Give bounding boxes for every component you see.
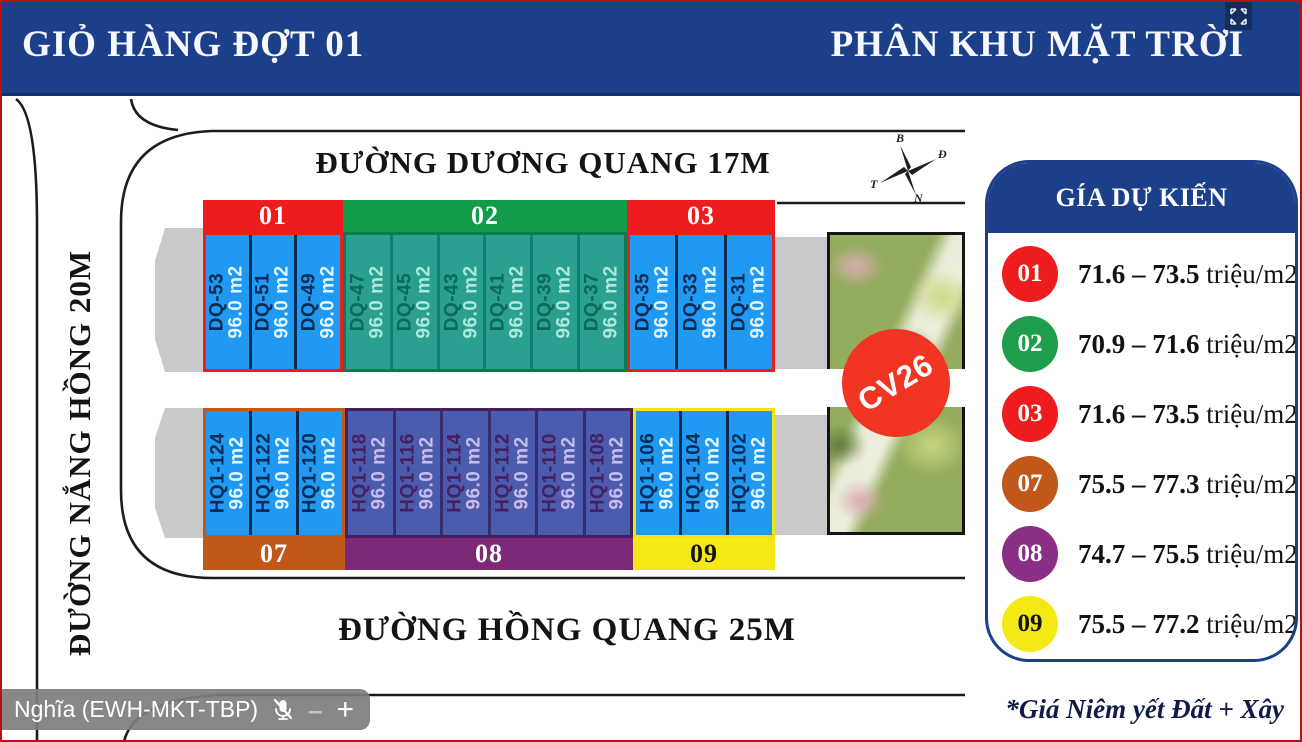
compass-east-label: Đ [938, 147, 947, 162]
plot-name: HQ1-122 [255, 433, 274, 514]
plot-name: HQ1-124 [208, 433, 227, 514]
legend-circle-07: 07 [1002, 456, 1058, 512]
block-03-label: 03 [627, 200, 775, 232]
plot-name: DQ-33 [682, 273, 701, 331]
screenshot-canvas: GIỎ HÀNG ĐỢT 01 PHÂN KHU MẶT TRỜI ĐƯỜNG … [0, 0, 1302, 742]
plot-area: 96.0 m2 [602, 265, 621, 338]
legend-price: 71.6 – 73.5 triệu/m2 [1078, 259, 1298, 290]
plot-name: HQ1-114 [446, 433, 465, 513]
presenter-nameplate: Nghĩa (EWH-MKT-TBP) – + [0, 689, 370, 730]
plot-area: 96.0 m2 [370, 436, 389, 509]
compass-south-label: N [914, 191, 923, 206]
compass-north-label: B [896, 131, 904, 146]
plot-cell-HQ1-104: HQ1-10496.0 m2 [679, 411, 725, 535]
block-03: 03DQ-3596.0 m2DQ-3396.0 m2DQ-3196.0 m2 [627, 200, 775, 372]
plot-cell-DQ-43: DQ-4396.0 m2 [437, 235, 484, 369]
page-title-left: GIỎ HÀNG ĐỢT 01 [22, 23, 364, 66]
plot-name: HQ1-108 [588, 433, 607, 514]
mic-off-icon[interactable] [272, 698, 294, 722]
street-label-nang-hong: ĐƯỜNG NẮNG HỒNG 20M [62, 241, 98, 665]
block-02-cells: DQ-4796.0 m2DQ-4596.0 m2DQ-4396.0 m2DQ-4… [343, 232, 627, 372]
plot-name: HQ1-102 [731, 433, 750, 514]
minus-icon[interactable]: – [308, 697, 322, 723]
plot-name: DQ-51 [254, 273, 273, 331]
legend-rows: 0171.6 – 73.5 triệu/m20270.9 – 71.6 triệ… [988, 239, 1295, 659]
plot-area: 96.0 m2 [228, 436, 247, 509]
road-left-outer-edge [16, 99, 37, 740]
plot-name: DQ-47 [349, 273, 368, 331]
plot-cell-HQ1-124: HQ1-12496.0 m2 [206, 411, 249, 535]
plot-area: 96.0 m2 [418, 436, 437, 509]
plot-area: 96.0 m2 [560, 436, 579, 509]
plot-area: 96.0 m2 [555, 265, 574, 338]
gray-strip-bottom-right [775, 415, 827, 535]
plot-name: DQ-39 [536, 273, 555, 331]
plot-cell-DQ-51: DQ-5196.0 m2 [249, 235, 295, 369]
legend-price: 70.9 – 71.6 triệu/m2 [1078, 329, 1298, 360]
plot-cell-DQ-39: DQ-3996.0 m2 [530, 235, 577, 369]
block-03-cells: DQ-3596.0 m2DQ-3396.0 m2DQ-3196.0 m2 [627, 232, 775, 372]
legend-row-03: 0371.6 – 73.5 triệu/m2 [988, 379, 1295, 449]
compass-west-label: T [870, 177, 877, 192]
plot-cell-HQ1-120: HQ1-12096.0 m2 [296, 411, 342, 535]
plot-area: 96.0 m2 [704, 436, 723, 509]
plot-name: DQ-43 [442, 273, 461, 331]
legend-circle-08: 08 [1002, 526, 1058, 582]
plot-cell-DQ-41: DQ-4196.0 m2 [483, 235, 530, 369]
plot-cell-DQ-35: DQ-3596.0 m2 [630, 235, 675, 369]
title-bar: GIỎ HÀNG ĐỢT 01 PHÂN KHU MẶT TRỜI [0, 2, 1302, 96]
legend-footnote: *Giá Niêm yết Đất + Xây [864, 694, 1284, 725]
plot-cell-HQ1-110: HQ1-11096.0 m2 [535, 411, 583, 535]
plot-area: 96.0 m2 [273, 265, 292, 338]
block-01: 01DQ-5396.0 m2DQ-5196.0 m2DQ-4996.0 m2 [203, 200, 343, 372]
plot-area: 96.0 m2 [608, 436, 627, 509]
legend-price: 71.6 – 73.5 triệu/m2 [1078, 399, 1298, 430]
block-08-cells: HQ1-11896.0 m2HQ1-11696.0 m2HQ1-11496.0 … [345, 408, 633, 538]
plot-cell-DQ-37: DQ-3796.0 m2 [577, 235, 624, 369]
plot-cell-DQ-49: DQ-4996.0 m2 [294, 235, 340, 369]
plot-area: 96.0 m2 [658, 436, 677, 509]
legend-circle-03: 03 [1002, 386, 1058, 442]
block-09-label: 09 [633, 538, 775, 570]
block-09-cells: HQ1-10696.0 m2HQ1-10496.0 m2HQ1-10296.0 … [633, 408, 775, 538]
plot-area: 96.0 m2 [750, 436, 769, 509]
plot-cell-HQ1-102: HQ1-10296.0 m2 [726, 411, 772, 535]
park-badge: CV26 [842, 329, 950, 437]
block-07: HQ1-12496.0 m2HQ1-12296.0 m2HQ1-12096.0 … [203, 408, 345, 570]
plot-area: 96.0 m2 [462, 265, 481, 338]
plot-area: 96.0 m2 [701, 265, 720, 338]
block-07-label: 07 [203, 538, 345, 570]
presenter-name: Nghĩa (EWH-MKT-TBP) [14, 696, 258, 723]
park-badge-label: CV26 [852, 347, 940, 420]
block-01-cells: DQ-5396.0 m2DQ-5196.0 m2DQ-4996.0 m2 [203, 232, 343, 372]
plot-cell-HQ1-108: HQ1-10896.0 m2 [583, 411, 631, 535]
plot-name: DQ-35 [633, 273, 652, 331]
road-connector [131, 99, 178, 130]
collapse-arrows-icon[interactable] [1225, 2, 1252, 30]
block-09: HQ1-10696.0 m2HQ1-10496.0 m2HQ1-10296.0 … [633, 408, 775, 570]
plot-cell-DQ-33: DQ-3396.0 m2 [675, 235, 723, 369]
plot-area: 96.0 m2 [749, 265, 768, 338]
gray-parcel-bottom-left [155, 408, 205, 538]
plot-name: HQ1-116 [398, 433, 417, 513]
plot-area: 96.0 m2 [368, 265, 387, 338]
legend-row-09: 0975.5 – 77.2 triệu/m2 [988, 589, 1295, 659]
plot-area: 96.0 m2 [227, 265, 246, 338]
legend-title: GÍA DỰ KIẾN [988, 163, 1295, 233]
legend-row-07: 0775.5 – 77.3 triệu/m2 [988, 449, 1295, 519]
plot-name: DQ-45 [395, 273, 414, 331]
plot-cell-DQ-53: DQ-5396.0 m2 [206, 235, 249, 369]
plot-cell-DQ-45: DQ-4596.0 m2 [390, 235, 437, 369]
plot-cell-HQ1-116: HQ1-11696.0 m2 [393, 411, 441, 535]
plot-name: HQ1-106 [638, 433, 657, 514]
legend-price: 75.5 – 77.3 triệu/m2 [1078, 469, 1298, 500]
plot-name: DQ-41 [489, 273, 508, 331]
block-08-label: 08 [345, 538, 633, 570]
block-02: 02DQ-4796.0 m2DQ-4596.0 m2DQ-4396.0 m2DQ… [343, 200, 627, 372]
plot-area: 96.0 m2 [415, 265, 434, 338]
block-08: HQ1-11896.0 m2HQ1-11696.0 m2HQ1-11496.0 … [345, 408, 633, 570]
plot-cell-HQ1-118: HQ1-11896.0 m2 [348, 411, 393, 535]
plot-cell-DQ-31: DQ-3196.0 m2 [724, 235, 772, 369]
plot-area: 96.0 m2 [508, 265, 527, 338]
block-02-label: 02 [343, 200, 627, 232]
street-label-duong-quang: ĐƯỜNG DƯƠNG QUANG 17M [243, 145, 843, 181]
plus-icon[interactable]: + [337, 695, 355, 725]
plot-name: DQ-31 [730, 273, 749, 331]
plot-area: 96.0 m2 [513, 436, 532, 509]
plot-cell-HQ1-114: HQ1-11496.0 m2 [440, 411, 488, 535]
plot-name: DQ-53 [208, 273, 227, 331]
plot-area: 96.0 m2 [465, 436, 484, 509]
plot-cell-DQ-47: DQ-4796.0 m2 [346, 235, 390, 369]
gray-parcel-top-left [155, 228, 205, 372]
plot-name: HQ1-110 [541, 433, 560, 513]
legend-row-01: 0171.6 – 73.5 triệu/m2 [988, 239, 1295, 309]
page-title-right: PHÂN KHU MẶT TRỜI [831, 23, 1284, 66]
compass-rose: B Đ T N [862, 133, 954, 205]
plot-cell-HQ1-112: HQ1-11296.0 m2 [488, 411, 536, 535]
legend-circle-09: 09 [1002, 596, 1058, 652]
block-01-label: 01 [203, 200, 343, 232]
legend-row-02: 0270.9 – 71.6 triệu/m2 [988, 309, 1295, 379]
street-label-hong-quang: ĐƯỜNG HỒNG QUANG 25M [267, 612, 867, 649]
plot-name: HQ1-120 [301, 433, 320, 514]
legend-circle-02: 02 [1002, 316, 1058, 372]
plot-name: HQ1-118 [351, 433, 370, 513]
legend-panel: GÍA DỰ KIẾN 0171.6 – 73.5 triệu/m20270.9… [985, 160, 1298, 662]
plot-area: 96.0 m2 [274, 436, 293, 509]
legend-circle-01: 01 [1002, 246, 1058, 302]
plot-name: DQ-37 [583, 273, 602, 331]
plot-name: HQ1-112 [493, 433, 512, 513]
plot-name: DQ-49 [299, 273, 318, 331]
block-07-cells: HQ1-12496.0 m2HQ1-12296.0 m2HQ1-12096.0 … [203, 408, 345, 538]
plot-name: HQ1-104 [685, 433, 704, 514]
plot-area: 96.0 m2 [320, 436, 339, 509]
plot-area: 96.0 m2 [319, 265, 338, 338]
legend-row-08: 0874.7 – 75.5 triệu/m2 [988, 519, 1295, 589]
legend-price: 75.5 – 77.2 triệu/m2 [1078, 609, 1298, 640]
legend-price: 74.7 – 75.5 triệu/m2 [1078, 539, 1298, 570]
plot-area: 96.0 m2 [653, 265, 672, 338]
plot-cell-HQ1-106: HQ1-10696.0 m2 [636, 411, 679, 535]
plot-cell-HQ1-122: HQ1-12296.0 m2 [249, 411, 295, 535]
gray-strip-top-right [775, 237, 827, 372]
